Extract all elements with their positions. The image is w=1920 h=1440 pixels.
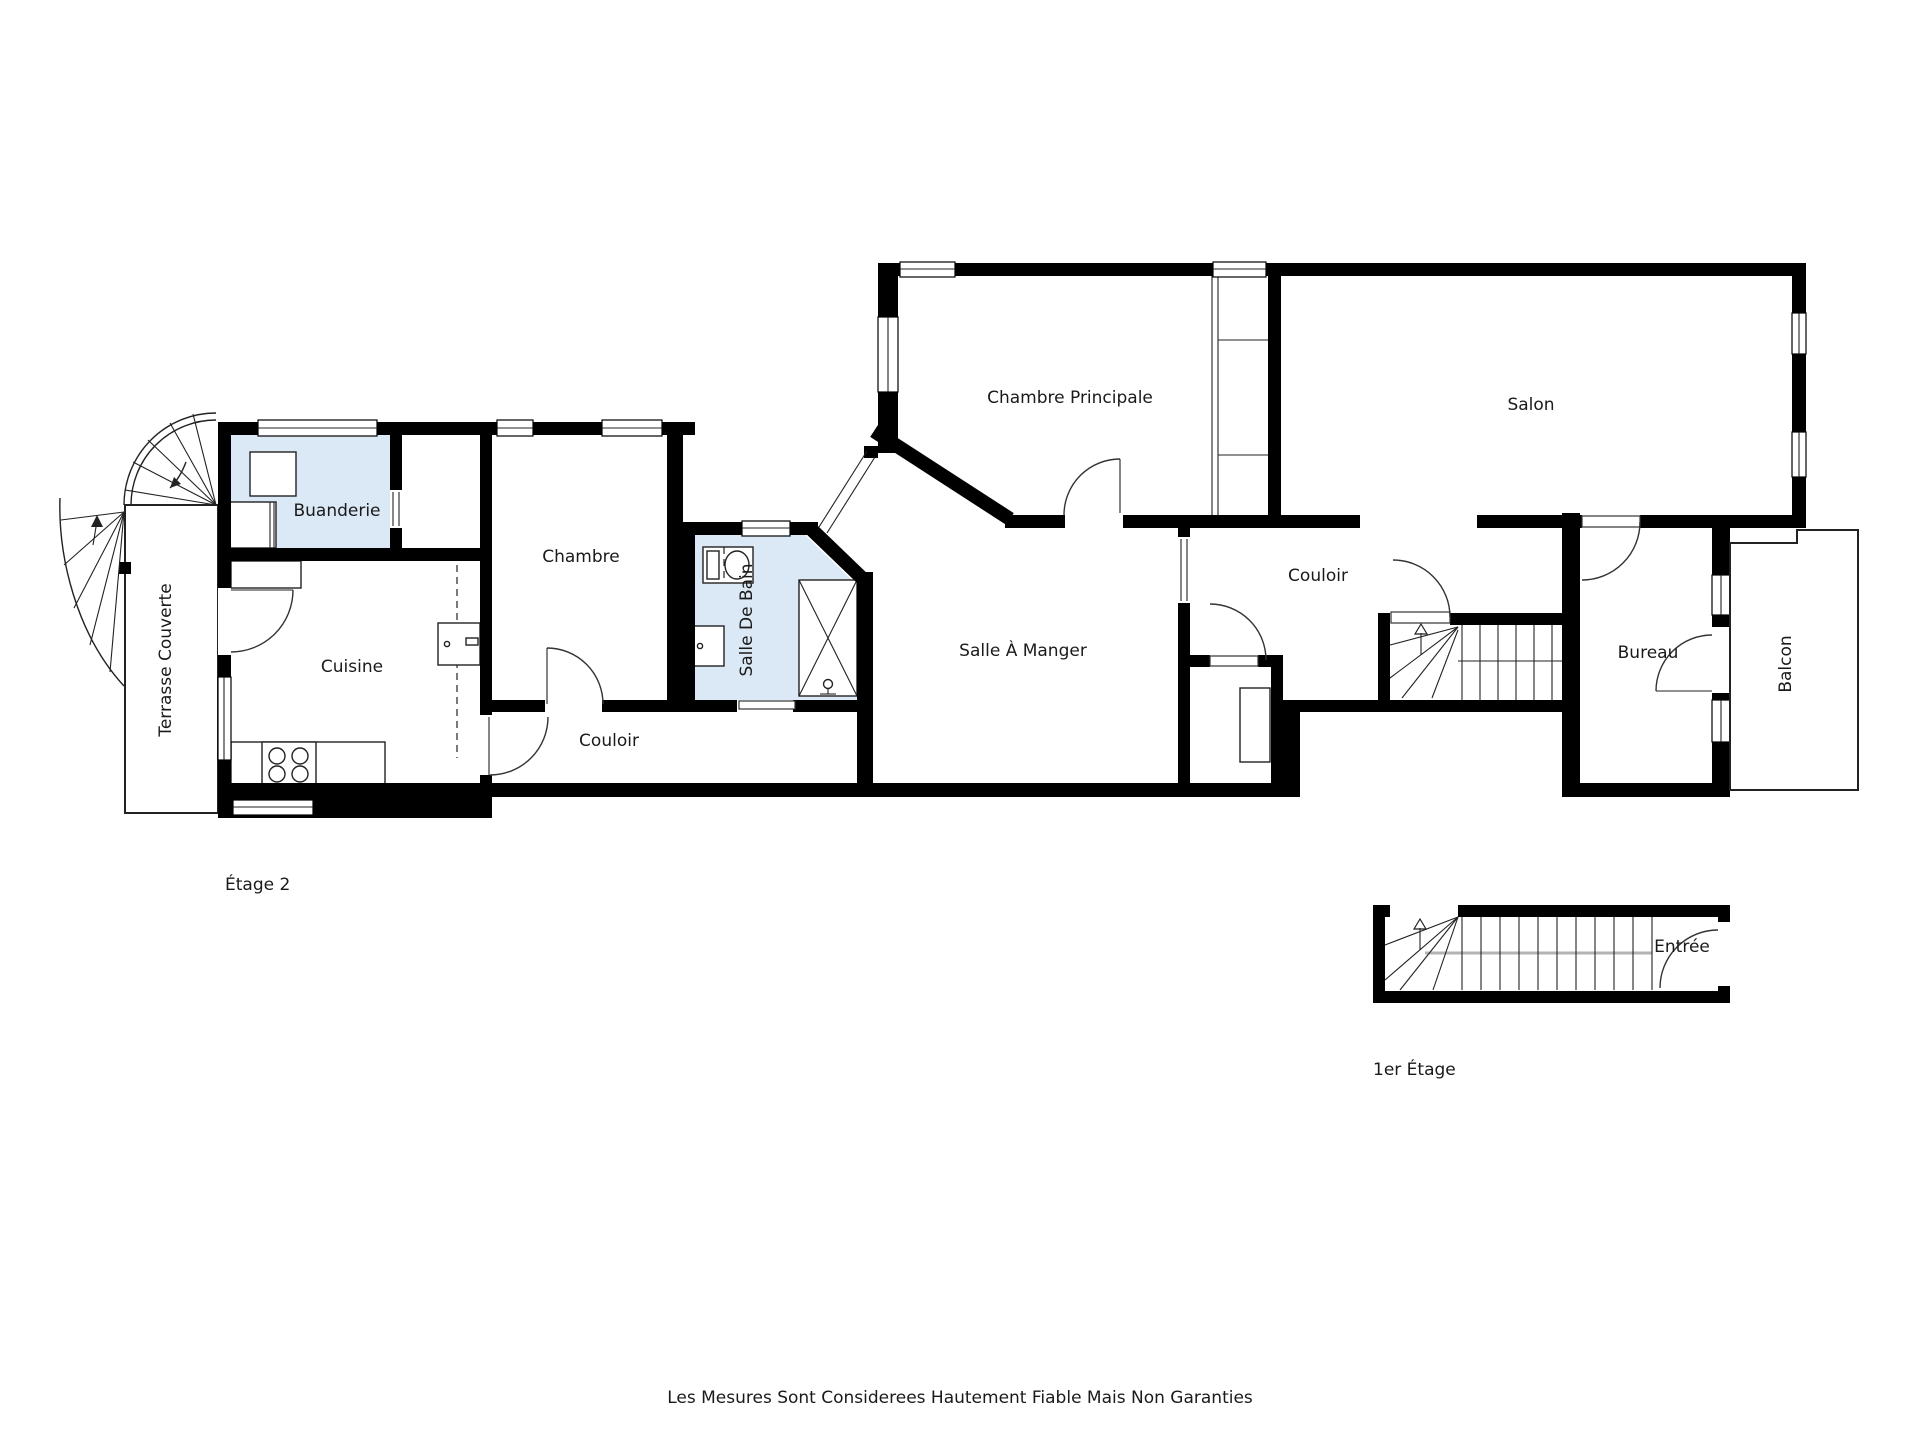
stair-direction-arrow-icon — [1414, 919, 1426, 929]
floor-label-etage2: Étage 2 — [225, 873, 290, 895]
door-chambre — [547, 648, 603, 704]
floorplan-drawing: Chambre Principale Salon Buanderie Chamb… — [0, 0, 1920, 1440]
room-label-chambre-principale: Chambre Principale — [987, 388, 1153, 408]
room-label-cuisine: Cuisine — [321, 657, 383, 677]
room-label-buanderie: Buanderie — [293, 501, 380, 521]
door-cuisine — [231, 590, 293, 652]
walls — [218, 263, 1806, 818]
room-label-balcon: Balcon — [1776, 635, 1796, 692]
door-storage-closet — [1210, 656, 1258, 666]
room-label-terrasse-couverte: Terrasse Couverte — [156, 583, 176, 737]
room-label-salon: Salon — [1507, 395, 1554, 415]
stove — [262, 742, 316, 787]
floor-label-premier-etage: 1er Étage — [1373, 1058, 1456, 1080]
room-label-salle-de-bain: Salle De Bain — [737, 563, 757, 676]
room-label-entree: Entrée — [1654, 937, 1710, 957]
room-label-couloir-left: Couloir — [579, 731, 639, 751]
room-label-chambre: Chambre — [542, 547, 620, 567]
door-chambre-principale — [1064, 459, 1120, 515]
door-stairs — [1391, 612, 1450, 623]
storage-closet-interior — [1240, 688, 1270, 762]
door-bureau — [1582, 516, 1640, 527]
door-couloir-left — [490, 717, 548, 775]
stair-direction-arrow-icon — [1415, 624, 1427, 634]
stair-direction-arrow-icon — [91, 515, 103, 527]
diagonal-window — [819, 451, 875, 533]
room-label-bureau: Bureau — [1618, 643, 1679, 663]
room-label-couloir-right: Couloir — [1288, 566, 1348, 586]
disclaimer-text: Les Mesures Sont Considerees Hautement F… — [667, 1388, 1253, 1408]
wardrobe-closet — [1212, 276, 1268, 515]
floorplan-page: Chambre Principale Salon Buanderie Chamb… — [0, 0, 1920, 1440]
room-label-salle-a-manger: Salle À Manger — [959, 639, 1087, 661]
main-staircase — [1390, 624, 1568, 700]
door-salle-de-bain — [739, 701, 795, 709]
